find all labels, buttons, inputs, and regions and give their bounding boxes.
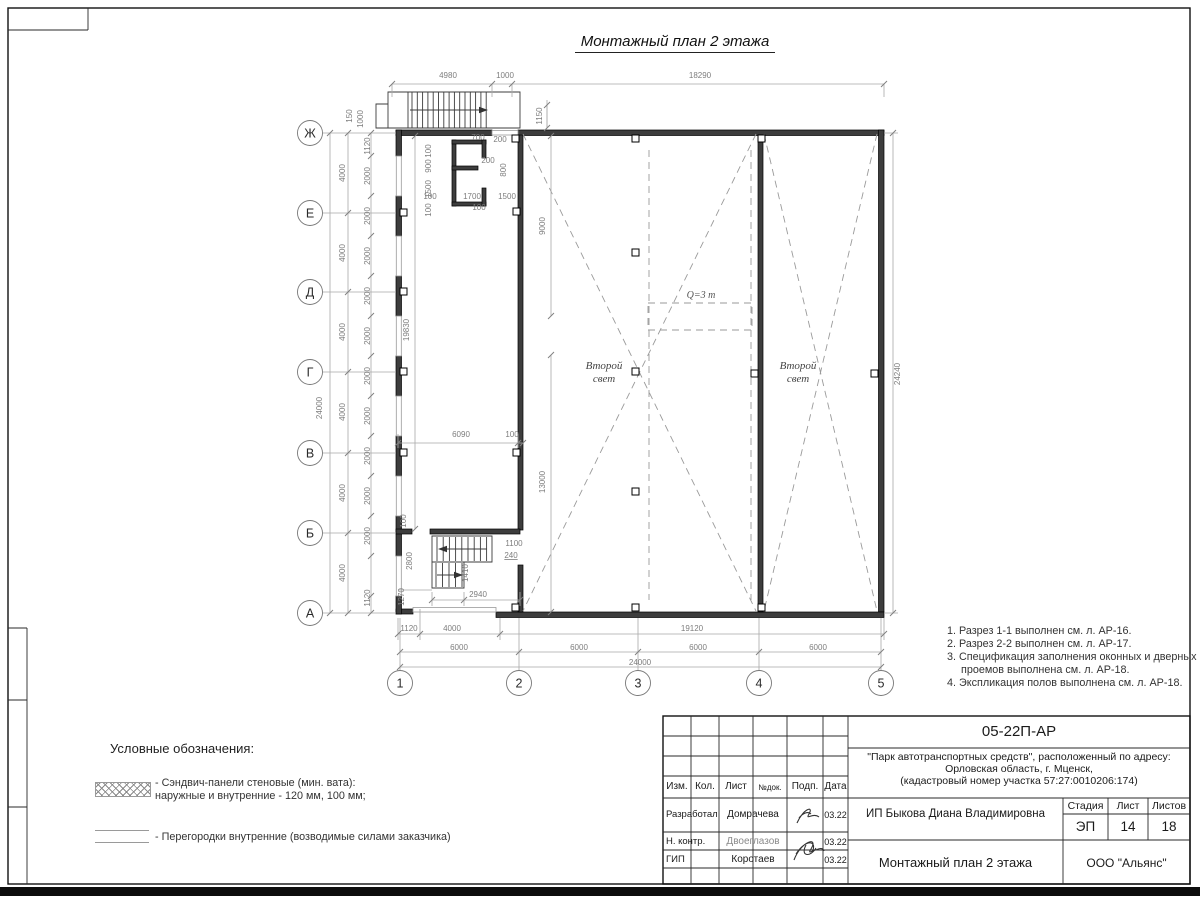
role-name: Двоеглазов [719, 836, 787, 847]
window [396, 156, 401, 196]
col-header-ndok: №док. [753, 783, 787, 792]
dimension-label: 700 [471, 133, 485, 142]
dimension-label: 13000 [538, 470, 547, 493]
window [396, 236, 401, 276]
page-title-text: Монтажный план 2 этажа [575, 33, 776, 53]
drawing-sheet: ЖЕДГВБА123454980100018290150100024240240… [0, 0, 1200, 900]
dimension-label: 4000 [443, 624, 461, 633]
col-header-data: Дата [823, 781, 848, 792]
dimension-label: 24000 [315, 396, 324, 419]
dimension-label: 900 [424, 159, 433, 173]
dimension-label: 150 [345, 109, 354, 123]
window [396, 396, 401, 436]
wall-axis4 [758, 135, 763, 612]
dimension-label: 24000 [629, 658, 652, 667]
dimension-label: 100 [399, 514, 408, 528]
doc-number: 05-22П-АР [850, 723, 1188, 740]
dimension-label: 4000 [338, 403, 347, 421]
dimension-label: 1120 [400, 624, 418, 633]
dimension-label: 6000 [450, 643, 468, 652]
dimension-label: 6000 [689, 643, 707, 652]
scan-edge-bar [0, 887, 1200, 896]
col-header-kol: Кол. [691, 781, 719, 792]
axis-row-label: Е [306, 207, 314, 221]
partition-bottom [413, 608, 496, 613]
role-label: ГИП [666, 854, 721, 865]
window [396, 316, 401, 356]
dimension-label: 4980 [439, 71, 457, 80]
role-date: 03.22 [823, 837, 848, 847]
notes: 1. Разрез 1-1 выполнен см. л. АР-16. 2. … [947, 625, 1197, 690]
stage-header: Листов [1148, 800, 1190, 812]
axis-row-label: Ж [304, 127, 316, 141]
dimension-label: 1500 [498, 192, 516, 201]
stair-arrow-left [438, 546, 447, 552]
project-line: "Парк автотранспортных средств", располо… [850, 751, 1188, 763]
dimension-label: 2000 [363, 367, 372, 385]
dimension-label: 1120 [363, 589, 372, 607]
crane-zone [648, 303, 752, 330]
project-line: Орловская область, г. Мценск, [850, 763, 1188, 775]
dimension-label: 1270 [397, 588, 406, 606]
wall-right [879, 130, 885, 612]
dimension-label: 240 [504, 551, 518, 560]
dimension-label: 4000 [338, 564, 347, 582]
second-light-label: Второй [586, 360, 623, 372]
dimension-label: 1150 [535, 107, 544, 125]
axis-col-label: 4 [756, 677, 763, 691]
dimension-label: 200 [493, 135, 507, 144]
dimension-label: 4000 [338, 484, 347, 502]
role-label: Н. контр. [666, 836, 721, 847]
page-title: Монтажный план 2 этажа [455, 33, 895, 50]
dimension-label: 100 [505, 430, 519, 439]
dimension-label: 4000 [338, 244, 347, 262]
wall-top-right [518, 130, 884, 136]
sheet-number: 14 [1108, 819, 1148, 834]
legend-heading: Условные обозначения: [110, 741, 254, 756]
dimension-label: 100 [424, 144, 433, 158]
sheet-name: Монтажный план 2 этажа [850, 855, 1061, 870]
dimension-label: 19120 [681, 624, 704, 633]
wall-bottom [496, 612, 884, 618]
dimension-label: 2000 [363, 407, 372, 425]
second-light-label: Второй [780, 360, 817, 372]
dimension-label: 2000 [363, 487, 372, 505]
stage-header: Лист [1108, 800, 1148, 812]
dimension-label: 18290 [689, 71, 712, 80]
dimension-label: 2000 [363, 447, 372, 465]
second-light-label: свет [787, 373, 809, 385]
company-name: ООО "Альянс" [1063, 856, 1190, 870]
axis-row-label: В [306, 447, 314, 461]
col-header-list: Лист [719, 781, 753, 792]
crane-capacity-label: Q=3 т [687, 290, 716, 301]
legend-label-sandwich-panel: - Сэндвич-панели стеновые (мин. вата): н… [155, 777, 485, 802]
dimension-label: 4000 [338, 323, 347, 341]
dimension-label: 1100 [505, 539, 523, 548]
axis-col-label: 3 [635, 677, 642, 691]
dimension-label: 2000 [363, 287, 372, 305]
sheet-count: 18 [1148, 819, 1190, 834]
axis-col-label: 2 [516, 677, 523, 691]
dimension-label: 800 [499, 163, 508, 177]
note-line: 3. Спецификация заполнения оконных и две… [947, 651, 1197, 664]
legend-label-line: - Сэндвич-панели стеновые (мин. вата): [155, 777, 485, 790]
second-light-label: свет [593, 373, 615, 385]
note-line: 4. Экспликация полов выполнена см. л. АР… [947, 677, 1197, 690]
dimension-label: 2000 [363, 527, 372, 545]
note-line: проемов выполнена см. л. АР-18. [947, 664, 1197, 677]
legend-label-line: наружные и внутренние - 120 мм, 100 мм; [155, 790, 485, 803]
dimension-label: 9000 [538, 217, 547, 235]
dimension-label: 2000 [363, 207, 372, 225]
axis-row-label: Г [307, 366, 314, 380]
wall-axis2 [518, 135, 523, 530]
role-name: Домрачева [719, 809, 787, 820]
dimension-label: 2000 [363, 167, 372, 185]
dimension-label: 19830 [402, 318, 411, 341]
dimension-label: 1410 [461, 564, 470, 582]
axis-col-label: 5 [878, 677, 885, 691]
axis-row-label: Б [306, 527, 314, 541]
role-date: 03.22 [823, 810, 848, 820]
dimension-label: 2000 [363, 327, 372, 345]
col-header-podp: Подп. [787, 781, 823, 792]
legend-label-partition: - Перегородки внутренние (возводимые сил… [155, 831, 555, 843]
legend-swatch-partition [95, 830, 149, 843]
dimension-label: 2800 [405, 552, 414, 570]
dimension-label: 100 [472, 203, 486, 212]
dimension-label: 24240 [893, 362, 902, 385]
dimension-label: 100 [424, 203, 433, 217]
note-line: 1. Разрез 1-1 выполнен см. л. АР-16. [947, 625, 1197, 638]
stage-value: ЭП [1063, 819, 1108, 834]
dimension-label: 2940 [469, 590, 487, 599]
dimension-label: 1000 [496, 71, 514, 80]
dimension-label: 6000 [570, 643, 588, 652]
window [396, 476, 401, 516]
note-line: 2. Разрез 2-2 выполнен см. л. АР-17. [947, 638, 1197, 651]
dimension-label: 6000 [809, 643, 827, 652]
col-header-izm: Изм. [663, 781, 691, 792]
signature-1 [797, 809, 819, 823]
role-date: 03.22 [823, 855, 848, 865]
signature-2 [794, 842, 824, 860]
dimension-label: 6090 [452, 430, 470, 439]
dimension-label: 1700 [463, 192, 481, 201]
legend-swatch-sandwich-panel [95, 782, 151, 797]
client-name: ИП Быкова Диана Владимировна [850, 808, 1061, 820]
dimension-label: 4000 [338, 164, 347, 182]
role-name: Коротаев [719, 854, 787, 865]
void-markings [523, 134, 877, 611]
dimension-label: 100 [423, 192, 437, 201]
dimension-label: 1120 [363, 137, 372, 155]
stage-header: Стадия [1063, 800, 1108, 812]
axis-row-label: Д [306, 286, 315, 300]
axis-row-label: А [306, 607, 315, 621]
dimension-label: 2000 [363, 247, 372, 265]
project-line: (кадастровый номер участка 57:27:0010206… [850, 775, 1188, 787]
dimension-label: 200 [481, 156, 495, 165]
dimension-label: 1000 [356, 110, 365, 128]
axes-and-dimensions: ЖЕДГВБА123454980100018290150100024240240… [298, 71, 903, 696]
role-label: Разработал [666, 809, 721, 820]
axis-col-label: 1 [397, 677, 404, 691]
